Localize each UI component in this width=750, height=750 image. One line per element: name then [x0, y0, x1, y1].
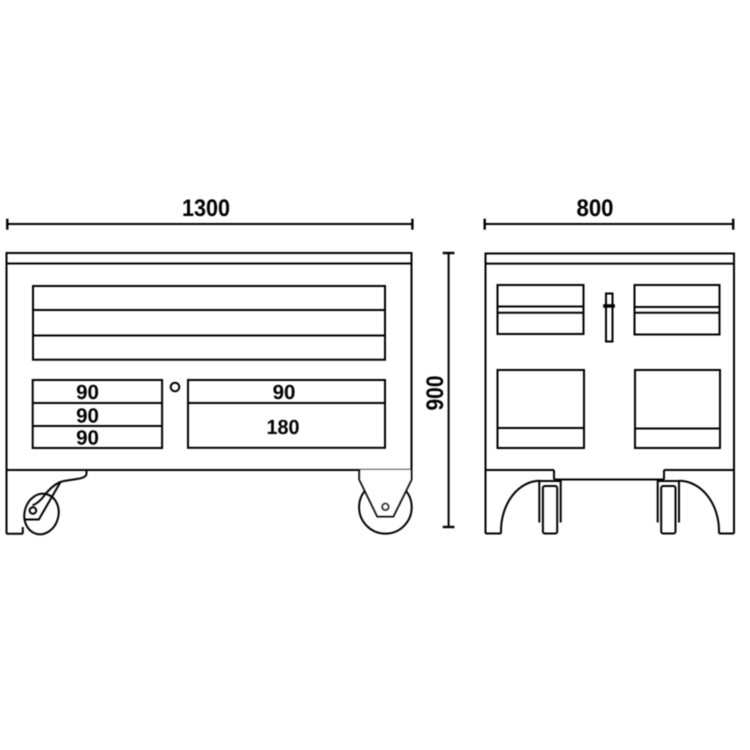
svg-text:90: 90	[76, 405, 99, 428]
svg-text:900: 900	[422, 376, 449, 411]
svg-text:180: 180	[267, 416, 300, 439]
svg-text:90: 90	[76, 381, 99, 404]
svg-text:1300: 1300	[182, 195, 230, 222]
svg-text:90: 90	[76, 427, 99, 450]
svg-text:800: 800	[577, 195, 614, 222]
svg-text:90: 90	[273, 381, 296, 404]
